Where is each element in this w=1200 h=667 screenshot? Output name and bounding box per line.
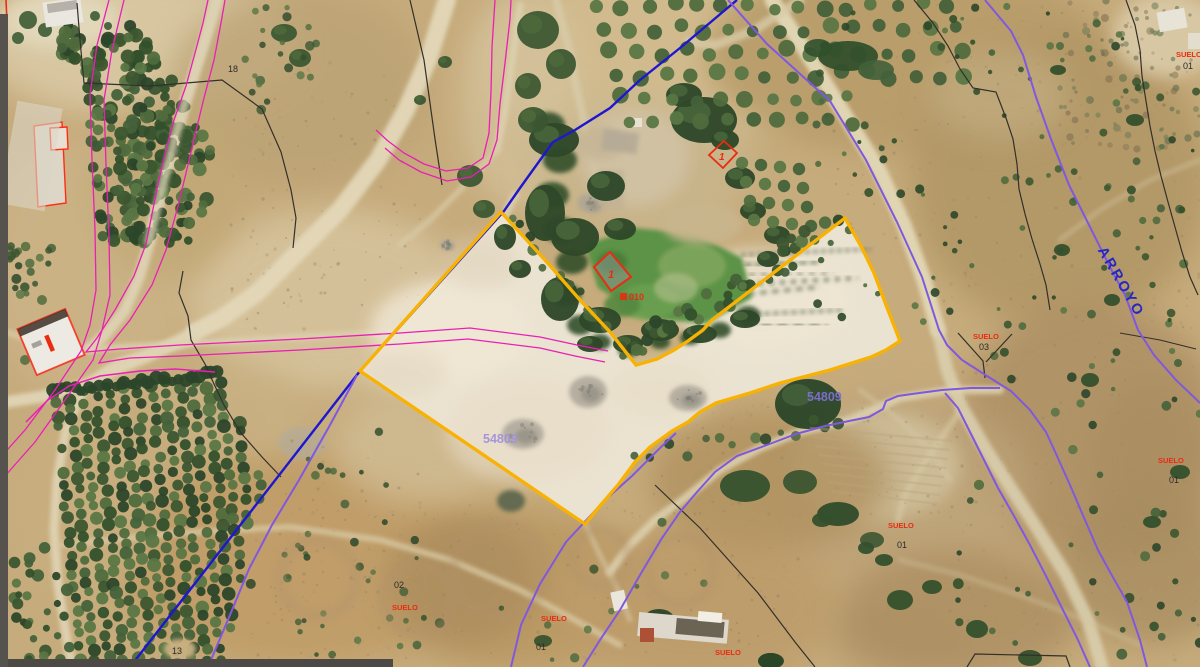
svg-text:54809: 54809: [483, 432, 518, 446]
svg-text:SUELO: SUELO: [973, 332, 999, 341]
svg-text:SUELO: SUELO: [1158, 456, 1184, 465]
svg-text:1: 1: [719, 152, 725, 163]
svg-text:01: 01: [1183, 61, 1193, 71]
svg-text:54809: 54809: [807, 390, 842, 404]
svg-text:SUELO: SUELO: [715, 648, 741, 657]
svg-text:SUELO: SUELO: [541, 614, 567, 623]
svg-text:010: 010: [629, 292, 644, 302]
svg-text:03: 03: [979, 342, 989, 352]
svg-text:SUELO: SUELO: [392, 603, 418, 612]
svg-text:02: 02: [394, 580, 404, 590]
svg-text:01: 01: [1169, 475, 1179, 485]
svg-text:18: 18: [228, 64, 238, 74]
svg-text:1: 1: [608, 269, 614, 281]
svg-text:SUELO: SUELO: [1176, 50, 1200, 59]
svg-text:01: 01: [536, 642, 546, 652]
svg-text:SUELO: SUELO: [888, 521, 914, 530]
svg-text:13: 13: [172, 646, 182, 656]
svg-text:01: 01: [897, 540, 907, 550]
